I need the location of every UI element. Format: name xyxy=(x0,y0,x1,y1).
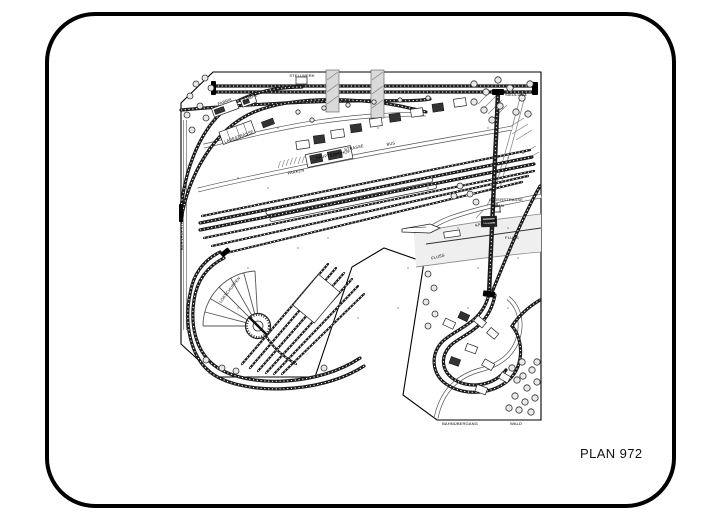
label-fluss-right: FLUSS xyxy=(505,236,519,240)
label-bahnhofstrasse: BAHNHOFSTRASSE xyxy=(180,210,184,250)
label-stellwerk: STELLWERK xyxy=(289,74,314,78)
track-plan-drawing xyxy=(178,68,544,428)
page: { "page": { "background": "#ffffff", "fr… xyxy=(0,0,720,526)
track-plan: STELLWERK SIEDLUNG FABRIK RAMPE LADESTRA… xyxy=(178,68,544,428)
label-wald: WALD xyxy=(510,422,522,426)
label-bahnuebergang: BAHNÜBERGANG xyxy=(442,422,478,426)
signal-box-building xyxy=(296,77,307,84)
label-siedlung: SIEDLUNG xyxy=(505,93,527,97)
plan-number: PLAN 972 xyxy=(580,446,642,461)
label-kran: KRAN xyxy=(492,204,504,208)
label-lagerstrasse: LAGERSTRASSE xyxy=(489,198,523,202)
